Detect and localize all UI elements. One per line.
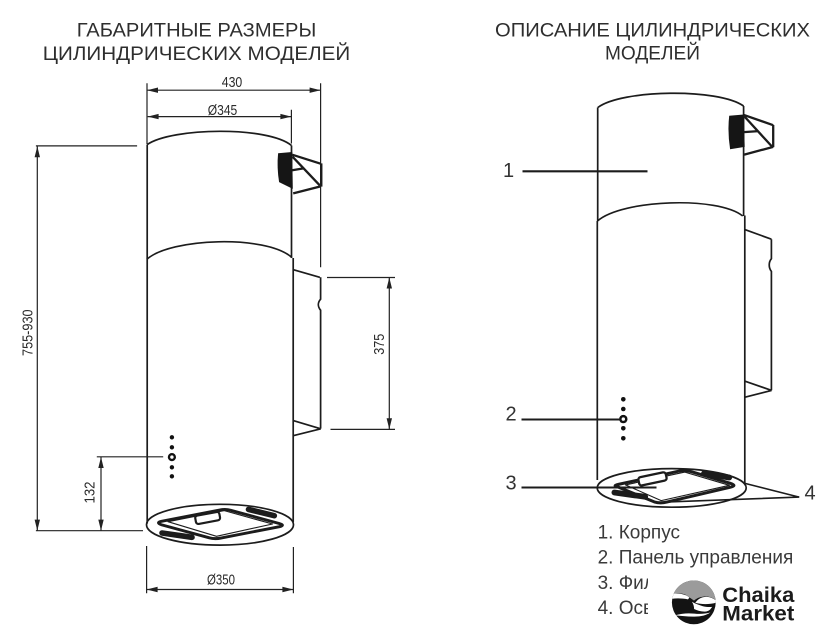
svg-text:2: 2: [505, 403, 516, 425]
svg-text:ГАБАРИТНЫЕ РАЗМЕРЫ: ГАБАРИТНЫЕ РАЗМЕРЫ: [77, 20, 317, 42]
svg-text:4: 4: [804, 483, 815, 505]
svg-text:2. Панель управления: 2. Панель управления: [598, 548, 794, 569]
svg-text:3: 3: [505, 472, 516, 494]
svg-text:1. Корпус: 1. Корпус: [598, 523, 680, 544]
svg-text:ОПИСАНИЕ ЦИЛИНДРИЧЕСКИХ: ОПИСАНИЕ ЦИЛИНДРИЧЕСКИХ: [495, 20, 810, 42]
svg-text:Ø345: Ø345: [208, 102, 238, 119]
svg-text:Ø350: Ø350: [207, 571, 235, 588]
svg-text:375: 375: [371, 334, 388, 355]
svg-text:132: 132: [82, 482, 99, 504]
svg-text:430: 430: [222, 74, 243, 91]
svg-text:МОДЕЛЕЙ: МОДЕЛЕЙ: [605, 41, 700, 65]
svg-text:1: 1: [503, 160, 514, 182]
svg-text:ЦИЛИНДРИЧЕСКИХ МОДЕЛЕЙ: ЦИЛИНДРИЧЕСКИХ МОДЕЛЕЙ: [43, 41, 351, 65]
svg-text:755-930: 755-930: [20, 309, 37, 356]
svg-text:Market: Market: [722, 602, 794, 625]
